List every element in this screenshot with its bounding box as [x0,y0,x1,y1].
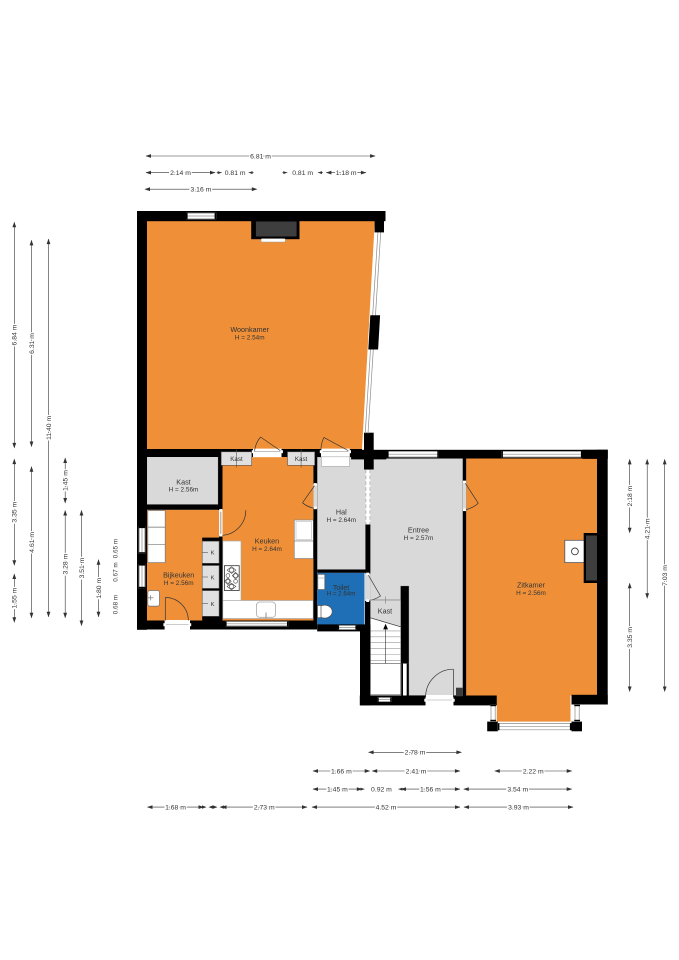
svg-text:1.45 m: 1.45 m [62,470,69,491]
svg-text:Woonkamer: Woonkamer [230,325,269,334]
svg-text:1.18 m: 1.18 m [336,170,357,177]
svg-text:2.14 m: 2.14 m [170,170,191,177]
svg-text:H = 2.64m: H = 2.64m [252,546,282,553]
svg-text:6.81 m: 6.81 m [250,153,271,160]
svg-text:H = 2.56m: H = 2.56m [516,590,546,597]
svg-text:K: K [211,551,215,557]
svg-text:K: K [211,575,215,581]
svg-text:Kast: Kast [295,456,308,463]
svg-text:11.40 m: 11.40 m [46,416,53,440]
svg-text:H = 2.56m: H = 2.56m [164,580,194,587]
svg-text:0.68 m: 0.68 m [113,595,120,615]
svg-text:4.61 m: 4.61 m [29,532,36,553]
svg-text:0.67 m: 0.67 m [113,562,120,582]
svg-text:0.65 m: 0.65 m [113,539,120,559]
svg-text:H = 2.57m: H = 2.57m [404,535,434,542]
svg-text:7.03 m: 7.03 m [662,565,669,586]
svg-text:Kast: Kast [230,456,243,463]
svg-text:4.52 m: 4.52 m [376,804,397,811]
svg-text:0.81 m: 0.81 m [225,170,246,177]
svg-text:3.93 m: 3.93 m [508,804,529,811]
svg-text:1.45 m: 1.45 m [327,786,348,793]
svg-text:2.73 m: 2.73 m [254,804,275,811]
svg-text:1.55 m: 1.55 m [12,587,19,608]
svg-text:Zitkamer: Zitkamer [517,581,546,590]
svg-text:3.35 m: 3.35 m [627,627,634,648]
svg-text:3.51 m: 3.51 m [79,557,86,578]
svg-text:H = 2.56m: H = 2.56m [169,487,199,494]
svg-text:K: K [211,602,215,608]
svg-text:H = 2.54m: H = 2.54m [235,334,265,341]
svg-text:2.18 m: 2.18 m [627,485,634,506]
svg-text:6.31 m: 6.31 m [29,333,36,354]
svg-text:1.56 m: 1.56 m [420,786,441,793]
svg-text:H = 2.64m: H = 2.64m [327,591,356,598]
svg-text:6.84 m: 6.84 m [12,324,19,345]
svg-text:3.54 m: 3.54 m [507,786,528,793]
svg-text:Kast: Kast [378,606,392,615]
svg-text:0.92 m: 0.92 m [371,786,392,793]
svg-text:0.81 m: 0.81 m [292,170,313,177]
svg-text:Hal: Hal [336,508,347,517]
svg-text:2.41 m: 2.41 m [406,768,427,775]
svg-text:4.21 m: 4.21 m [645,518,652,539]
svg-text:1.66 m: 1.66 m [331,768,352,775]
svg-text:1.80 m: 1.80 m [96,578,103,599]
svg-text:3.35 m: 3.35 m [12,501,19,522]
svg-text:Entree: Entree [408,526,429,535]
svg-text:H = 2.64m: H = 2.64m [326,517,356,524]
svg-text:Kast: Kast [176,477,190,486]
svg-text:Bijkeuken: Bijkeuken [163,571,194,580]
svg-text:2.78 m: 2.78 m [405,750,426,757]
svg-text:3.16 m: 3.16 m [191,187,212,194]
svg-text:2.22 m: 2.22 m [523,768,544,775]
svg-text:1.68 m: 1.68 m [165,804,186,811]
svg-text:Keuken: Keuken [255,537,279,546]
svg-text:3.28 m: 3.28 m [62,553,69,574]
